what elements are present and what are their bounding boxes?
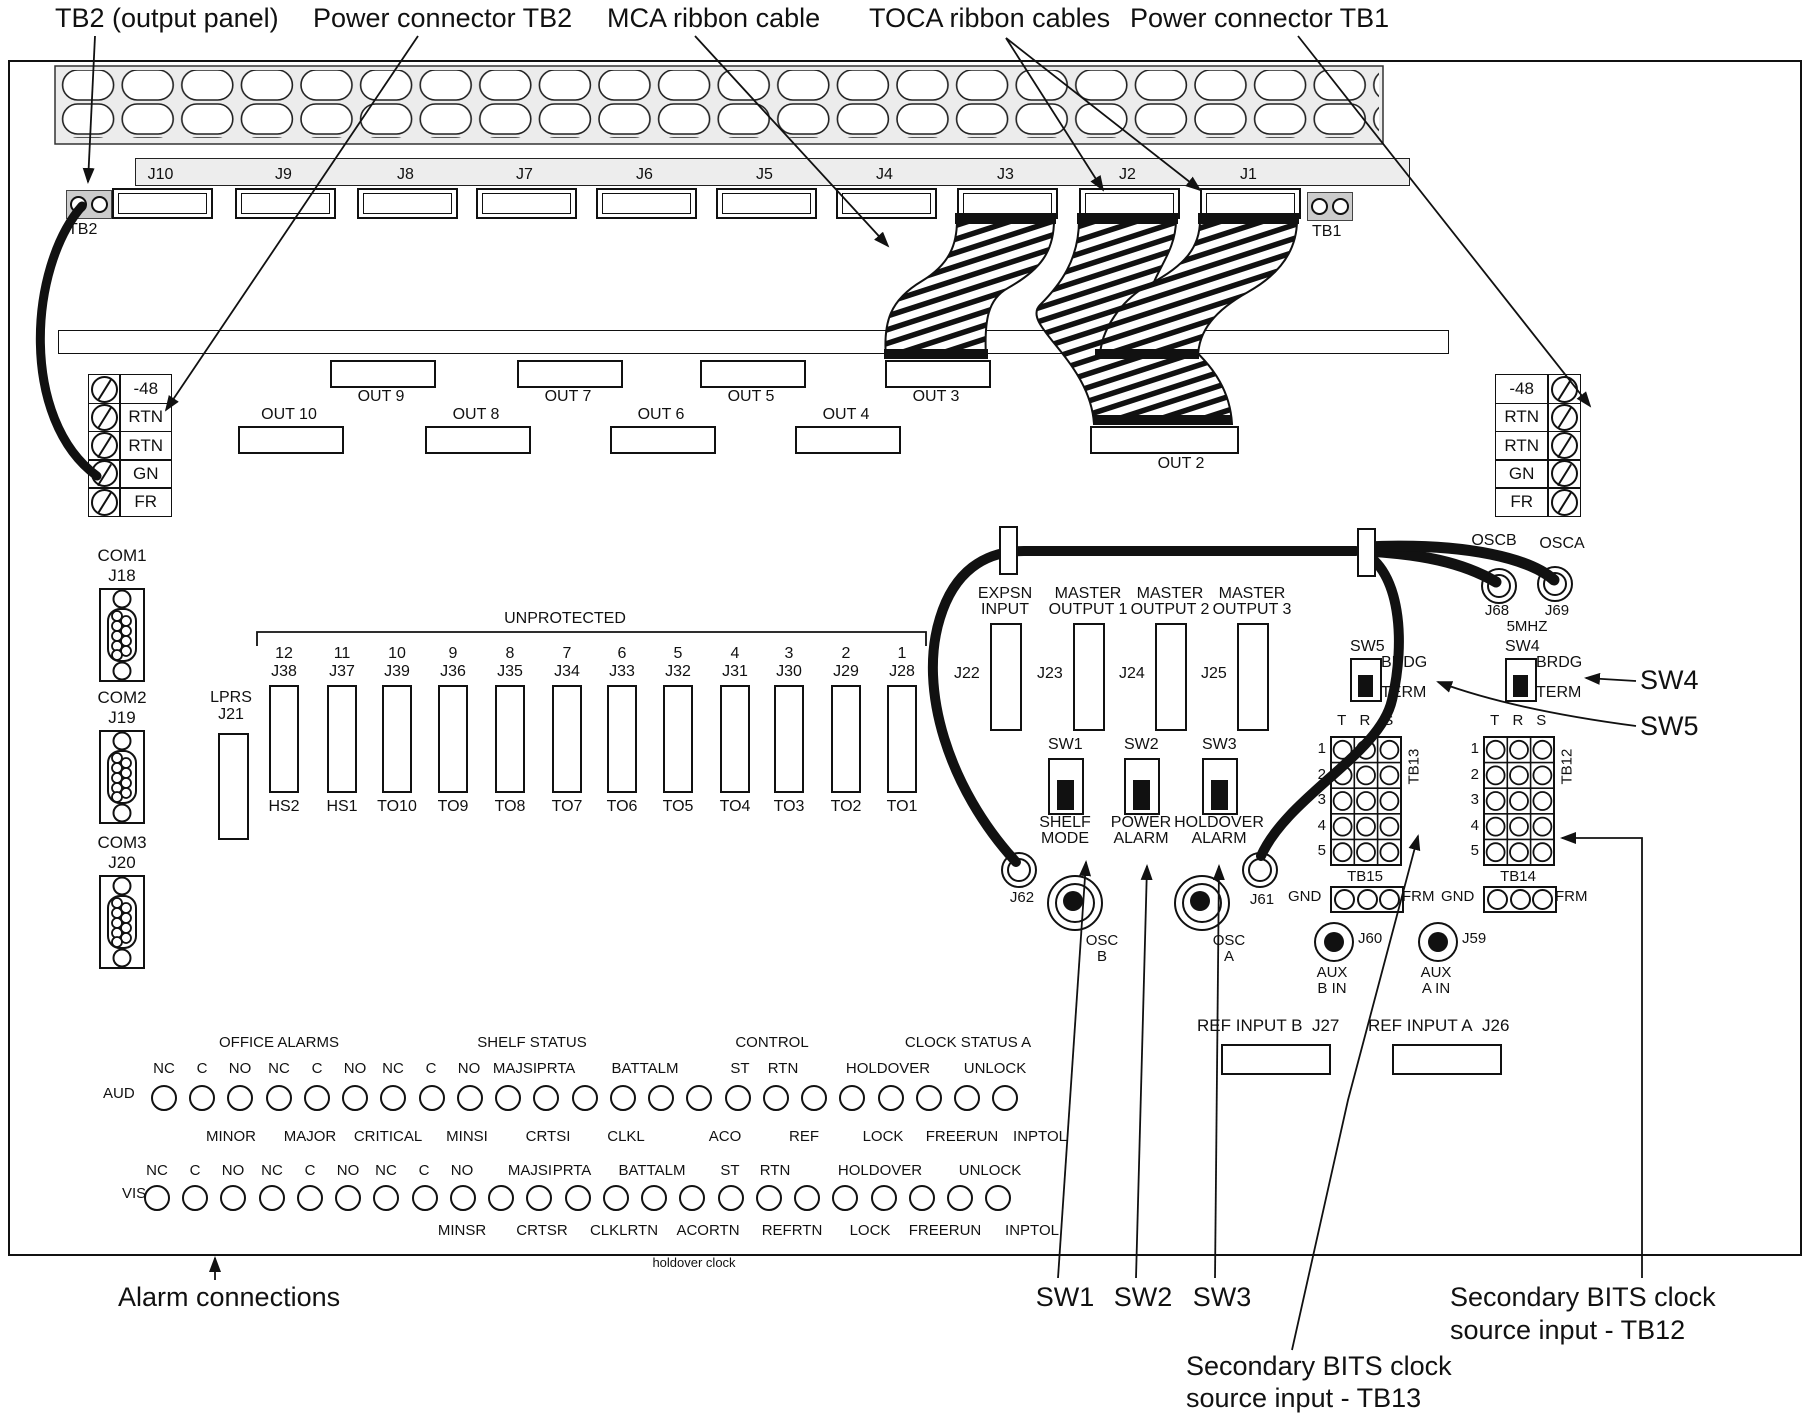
- pin-label: LOCK: [863, 1128, 904, 1145]
- tb13-row-numbers: 12345: [1314, 736, 1326, 864]
- screw-icon: [91, 489, 118, 516]
- tb15-label: TB15: [1330, 868, 1400, 885]
- pin-label: MINSR: [438, 1222, 486, 1239]
- pin-label: CLKLRTN: [590, 1222, 658, 1239]
- callout-secondary-tb13-line1: Secondary BITS clock: [1186, 1352, 1452, 1380]
- pin-label: CLKL: [607, 1128, 645, 1145]
- term-label: TERM: [1536, 684, 1581, 702]
- pin-label: NO: [344, 1060, 367, 1077]
- callout-sw1: SW1: [1036, 1283, 1095, 1311]
- pin-label: NC: [268, 1060, 290, 1077]
- slot-number: 7: [538, 645, 596, 663]
- terminal-label: RTN: [1495, 431, 1548, 461]
- slot-number: 1: [873, 645, 931, 663]
- pin-label: REFRTN: [762, 1222, 823, 1239]
- pin-label: C: [197, 1060, 208, 1077]
- aux-jack: J60: [1358, 930, 1382, 947]
- slot-number: 12: [255, 645, 313, 663]
- slot-number: 2: [817, 645, 875, 663]
- pin-circle: [457, 1085, 483, 1111]
- unprotected-slot: 10 J39 TO10: [368, 645, 426, 816]
- j61-label: J61: [1250, 892, 1274, 908]
- switch-body: [1350, 658, 1382, 702]
- pin-label: NO: [222, 1162, 245, 1179]
- slot-box: [382, 685, 412, 793]
- slot-box: [327, 685, 357, 793]
- unprotected-slot: 5 J32 TO5: [649, 645, 707, 816]
- pin-circle: [342, 1085, 368, 1111]
- slot-box: [552, 685, 582, 793]
- out-box: [425, 426, 531, 454]
- terminal-row: RTN: [88, 404, 172, 432]
- gnd-label: GND: [1441, 888, 1474, 905]
- master-port-box: [1237, 623, 1269, 731]
- pin-circle: [801, 1085, 827, 1111]
- pin-circle: [373, 1185, 399, 1211]
- pin-circle: [603, 1185, 629, 1211]
- terminal-label: FR: [119, 487, 172, 517]
- osc-a-line2: A: [1201, 948, 1257, 965]
- pin-circle: [151, 1085, 177, 1111]
- slot-box: [438, 685, 468, 793]
- slot-jack: J32: [649, 663, 707, 681]
- pin-label: PRTA: [553, 1162, 592, 1179]
- callout-sw5-label: SW5: [1640, 712, 1699, 740]
- terminal-label: GN: [1495, 459, 1548, 489]
- jack-label: J2: [1079, 166, 1176, 184]
- terminal-label: RTN: [1495, 403, 1548, 433]
- slot-number: 6: [593, 645, 651, 663]
- gnd-label: GND: [1288, 888, 1321, 905]
- screw-icon: [1551, 432, 1578, 459]
- ref-input-jack: J27: [1312, 1016, 1339, 1035]
- column-header: R: [1353, 712, 1376, 729]
- vis-row-label: VIS: [122, 1186, 146, 1202]
- out-label: OUT 10: [238, 406, 340, 424]
- ref-input: REF INPUT A J26: [1368, 1016, 1509, 1075]
- callout-secondary-tb13-line2: source input - TB13: [1186, 1384, 1421, 1412]
- pin-label: HOLDOVER: [838, 1162, 922, 1179]
- out2-label: OUT 2: [1158, 456, 1205, 473]
- screw-icon: [1551, 404, 1578, 431]
- row-number: 2: [1314, 762, 1326, 788]
- pin-circle: [220, 1185, 246, 1211]
- unprotected-slot: 1 J28 TO1: [873, 645, 931, 816]
- terminal-row: RTN: [1497, 432, 1581, 460]
- slot-number: 3: [760, 645, 818, 663]
- ref-input-box: [1221, 1044, 1331, 1075]
- screw-icon: [1551, 489, 1578, 516]
- slot-jack: J28: [873, 663, 931, 681]
- com-jack: J19: [96, 708, 148, 728]
- db9-connector-icon: [99, 588, 145, 682]
- tb12-pin-grid: [1483, 736, 1555, 866]
- pin-label: ST: [730, 1060, 749, 1077]
- jack-box: [716, 188, 817, 219]
- callout-sw2: SW2: [1114, 1283, 1173, 1311]
- tb1-terminal-hole: [1332, 198, 1349, 215]
- jack-box: [836, 188, 937, 219]
- pin-circle: [419, 1085, 445, 1111]
- pin-label: CRTSR: [516, 1222, 567, 1239]
- pin-circle: [610, 1085, 636, 1111]
- terminal-row: FR: [88, 489, 172, 517]
- screw-icon: [1551, 460, 1578, 487]
- pin-label: PRTA: [537, 1060, 576, 1077]
- unprotected-slot: 3 J30 TO3: [760, 645, 818, 816]
- pin-circle: [450, 1185, 476, 1211]
- slot-tag: TO7: [538, 798, 596, 816]
- alarm-section-header: OFFICE ALARMS: [219, 1034, 339, 1051]
- jack-box: [476, 188, 577, 219]
- pin-label: FREERUN: [926, 1128, 999, 1145]
- terminal-screw-cell: [88, 403, 121, 433]
- terminal-row: RTN: [1497, 404, 1581, 432]
- jack-box: [235, 188, 336, 219]
- terminal-screw-cell: [1548, 487, 1581, 517]
- aux-connector-icon: [1314, 922, 1354, 962]
- pin-circle: [878, 1085, 904, 1111]
- pin-circle: [572, 1085, 598, 1111]
- terminal-label: RTN: [119, 431, 172, 461]
- out-label: OUT 8: [425, 406, 527, 424]
- unprotected-slot: 2 J29 TO2: [817, 645, 875, 816]
- pin-circle: [380, 1085, 406, 1111]
- slot-number: 9: [424, 645, 482, 663]
- row-number: 4: [1467, 813, 1479, 839]
- slot-box: [269, 685, 299, 793]
- pin-label: C: [190, 1162, 201, 1179]
- slot-tag: TO8: [481, 798, 539, 816]
- jack-label: J6: [596, 166, 693, 184]
- tb12-row-numbers: 12345: [1467, 736, 1479, 864]
- callout-mca-ribbon-cable: MCA ribbon cable: [607, 4, 820, 32]
- pin-circle: [763, 1085, 789, 1111]
- ref-input: REF INPUT B J27: [1197, 1016, 1339, 1075]
- tb12-name: TB12: [1559, 745, 1576, 785]
- out-label: OUT 9: [330, 388, 432, 406]
- osc-b-line2: B: [1074, 948, 1130, 965]
- out-box: [330, 360, 436, 388]
- pin-label: NC: [146, 1162, 168, 1179]
- pin-label: NC: [382, 1060, 404, 1077]
- ref-input-jack: J26: [1482, 1016, 1509, 1035]
- pin-label: ACORTN: [676, 1222, 739, 1239]
- slot-tag: TO2: [817, 798, 875, 816]
- pin-circle: [335, 1185, 361, 1211]
- pin-circle: [182, 1185, 208, 1211]
- callout-secondary-tb12-line1: Secondary BITS clock: [1450, 1283, 1716, 1311]
- pin-label: INPTOL: [1005, 1222, 1059, 1239]
- pin-label: LOCK: [850, 1222, 891, 1239]
- pin-circle: [412, 1185, 438, 1211]
- switch-name: SW2: [1124, 736, 1158, 754]
- ref-input-label: REF INPUT A: [1368, 1016, 1473, 1035]
- pin-label: NO: [458, 1060, 481, 1077]
- terminal-screw-cell: [88, 459, 121, 489]
- com-name: COM1: [96, 546, 148, 566]
- screw-icon: [91, 376, 118, 403]
- terminal-label: RTN: [119, 403, 172, 433]
- out-box: [885, 360, 991, 388]
- tb2-power-connector: [66, 190, 112, 219]
- slot-box: [607, 685, 637, 793]
- unprotected-slot: 4 J31 TO4: [706, 645, 764, 816]
- pin-label: NC: [153, 1060, 175, 1077]
- pin-circle: [259, 1185, 285, 1211]
- pin-circle: [495, 1085, 521, 1111]
- pin-circle: [832, 1185, 858, 1211]
- unprotected-slot: 8 J35 TO8: [481, 645, 539, 816]
- pin-label: C: [419, 1162, 430, 1179]
- row-number: 1: [1314, 736, 1326, 762]
- row-number: 3: [1314, 787, 1326, 813]
- callout-power-connector-tb1: Power connector TB1: [1130, 4, 1389, 32]
- out-label: OUT 6: [610, 406, 712, 424]
- out2-box: [1090, 426, 1239, 454]
- callout-sw4-label: SW4: [1640, 666, 1699, 694]
- pin-label: BATTALM: [619, 1162, 686, 1179]
- term-label: TERM: [1381, 684, 1426, 702]
- tb13-column-headers: TRS: [1330, 712, 1400, 729]
- pin-label: MINOR: [206, 1128, 256, 1145]
- pin-circle: [144, 1185, 170, 1211]
- j68-label: J68: [1485, 603, 1509, 619]
- out-label: OUT 7: [517, 388, 619, 406]
- pin-circle: [526, 1185, 552, 1211]
- tb2-terminal-hole: [91, 196, 108, 213]
- power-terminal-block-left: -48 RTN RTN GN FR: [88, 376, 172, 517]
- terminal-screw-cell: [1548, 403, 1581, 433]
- slot-jack: J29: [817, 663, 875, 681]
- slot-jack: J38: [255, 663, 313, 681]
- pin-circle: [648, 1085, 674, 1111]
- oscb-label: OSCB: [1471, 533, 1516, 550]
- jack-label: J5: [716, 166, 813, 184]
- master-port-jack: J25: [1201, 665, 1227, 683]
- terminal-screw-cell: [88, 487, 121, 517]
- slot-number: 5: [649, 645, 707, 663]
- slot-number: 4: [706, 645, 764, 663]
- switch-name: SW5: [1350, 638, 1380, 656]
- slot-tag: TO10: [368, 798, 426, 816]
- jack-label: J10: [112, 166, 209, 184]
- db9-connector-icon: [99, 730, 145, 824]
- slot-jack: J36: [424, 663, 482, 681]
- ref-input-label: REF INPUT B: [1197, 1016, 1302, 1035]
- terminal-row: GN: [1497, 461, 1581, 489]
- callout-power-connector-tb2: Power connector TB2: [313, 4, 572, 32]
- master-port-line2: INPUT: [960, 601, 1050, 619]
- pin-circle: [679, 1185, 705, 1211]
- unprotected-slot: 6 J33 TO6: [593, 645, 651, 816]
- master-port-box: [1155, 623, 1187, 731]
- pin-label: MAJSI: [508, 1162, 552, 1179]
- terminal-label: -48: [1495, 374, 1548, 404]
- aud-row-label: AUD: [103, 1086, 135, 1102]
- pin-label: NC: [261, 1162, 283, 1179]
- unprotected-title: UNPROTECTED: [504, 611, 626, 628]
- pin-label: UNLOCK: [959, 1162, 1022, 1179]
- pin-circle: [565, 1185, 591, 1211]
- holdover-clock-note: holdover clock: [652, 1256, 735, 1270]
- pin-circle: [909, 1185, 935, 1211]
- jack-box: [112, 188, 213, 219]
- unprotected-slot: 12 J38 HS2: [255, 645, 313, 816]
- pin-circle: [916, 1085, 942, 1111]
- master-port-jack: J22: [954, 665, 980, 683]
- screw-icon: [1551, 376, 1578, 403]
- pin-circle: [947, 1185, 973, 1211]
- terminal-row: FR: [1497, 489, 1581, 517]
- switch-name: SW3: [1202, 736, 1236, 754]
- sw5-big: SW5: [1640, 711, 1699, 741]
- power-terminal-block-right: -48 RTN RTN GN FR: [1497, 376, 1581, 517]
- 5mhz-label: 5MHZ: [1507, 619, 1548, 635]
- pin-label: C: [426, 1060, 437, 1077]
- pin-circle: [756, 1185, 782, 1211]
- pin-label: HOLDOVER: [846, 1060, 930, 1077]
- slot-box: [774, 685, 804, 793]
- switch-body: [1048, 758, 1084, 815]
- tb1-terminal-hole: [1311, 198, 1328, 215]
- column-header: T: [1483, 712, 1506, 729]
- com-jack: J18: [96, 566, 148, 586]
- sw4-big: SW4: [1640, 665, 1699, 695]
- callout-sw3: SW3: [1193, 1283, 1252, 1311]
- pin-label: C: [305, 1162, 316, 1179]
- db9-connector-icon: [99, 875, 145, 969]
- j62-label: J62: [1010, 890, 1034, 906]
- osca-label: OSCA: [1539, 536, 1584, 553]
- pin-circle: [266, 1085, 292, 1111]
- master-port-box: [990, 623, 1022, 731]
- pin-circle: [954, 1085, 980, 1111]
- pin-circle: [839, 1085, 865, 1111]
- ref-input-box: [1392, 1044, 1502, 1075]
- alarm-section-header: CONTROL: [735, 1034, 808, 1051]
- frm-label: FRM: [1402, 888, 1435, 905]
- brdg-label: BRDG: [1536, 654, 1582, 672]
- slot-tag: TO5: [649, 798, 707, 816]
- pin-label: NO: [229, 1060, 252, 1077]
- terminal-screw-cell: [1548, 374, 1581, 404]
- aux-connector-icon: [1418, 922, 1458, 962]
- pin-circle: [686, 1085, 712, 1111]
- aux-jack: J59: [1462, 930, 1486, 947]
- master-port-jack: J24: [1119, 665, 1145, 683]
- slot-number: 8: [481, 645, 539, 663]
- pin-label: MINSI: [446, 1128, 488, 1145]
- slot-box: [831, 685, 861, 793]
- master-port-line2: OUTPUT 3: [1207, 601, 1297, 619]
- com-port: COM2 J19: [96, 688, 148, 824]
- pin-label: MAJSI: [493, 1060, 537, 1077]
- pin-label: CRTSI: [526, 1128, 571, 1145]
- slot-jack: J33: [593, 663, 651, 681]
- column-header: S: [1377, 712, 1400, 729]
- pin-circle: [533, 1085, 559, 1111]
- tb14-gnd-strip: [1483, 886, 1557, 913]
- switch-name: SW1: [1048, 736, 1082, 754]
- jack-label: J1: [1200, 166, 1297, 184]
- tb2-label: TB2: [68, 222, 97, 239]
- slot-jack: J30: [760, 663, 818, 681]
- column-header: S: [1530, 712, 1553, 729]
- master-port-jack: J23: [1037, 665, 1063, 683]
- pin-label: MAJOR: [284, 1128, 337, 1145]
- slot-tag: HS2: [255, 798, 313, 816]
- terminal-row: -48: [1497, 376, 1581, 404]
- slot-jack: J31: [706, 663, 764, 681]
- master-port-box: [1073, 623, 1105, 731]
- callout-tb2-output-panel: TB2 (output panel): [55, 4, 279, 32]
- jack-label: J7: [476, 166, 573, 184]
- pin-circle: [297, 1185, 323, 1211]
- jack-label: J8: [357, 166, 454, 184]
- slot-tag: TO4: [706, 798, 764, 816]
- tb13-name: TB13: [1406, 745, 1423, 785]
- com-port: COM3 J20: [96, 833, 148, 969]
- out-label: OUT 5: [700, 388, 802, 406]
- slot-tag: HS1: [313, 798, 371, 816]
- osc-a-line1: OSC: [1201, 932, 1257, 949]
- osc-b-line1: OSC: [1074, 932, 1130, 949]
- pin-circle: [641, 1185, 667, 1211]
- terminal-screw-cell: [88, 431, 121, 461]
- jack-label: J4: [836, 166, 933, 184]
- out-box: [610, 426, 716, 454]
- slot-jack: J35: [481, 663, 539, 681]
- com-name: COM2: [96, 688, 148, 708]
- tb1-label: TB1: [1312, 224, 1341, 241]
- lprs-jack: J21: [218, 707, 244, 724]
- tb12-column-headers: TRS: [1483, 712, 1553, 729]
- pin-circle: [227, 1085, 253, 1111]
- out-box: [517, 360, 623, 388]
- pin-label: UNLOCK: [964, 1060, 1027, 1077]
- pin-circle: [189, 1085, 215, 1111]
- terminal-label: GN: [119, 459, 172, 489]
- column-header: T: [1330, 712, 1353, 729]
- jack-label: J3: [957, 166, 1054, 184]
- jack-box: [957, 188, 1058, 219]
- pin-label: RTN: [768, 1060, 799, 1077]
- terminal-screw-cell: [1548, 459, 1581, 489]
- pin-circle: [488, 1185, 514, 1211]
- slot-tag: TO1: [873, 798, 931, 816]
- terminal-label: FR: [1495, 487, 1548, 517]
- out-box: [795, 426, 901, 454]
- jack-box: [1079, 188, 1180, 219]
- slot-tag: TO9: [424, 798, 482, 816]
- slot-jack: J39: [368, 663, 426, 681]
- pin-label: INPTOL: [1013, 1128, 1067, 1145]
- callout-secondary-tb12-line2: source input - TB12: [1450, 1316, 1685, 1344]
- slot-box: [663, 685, 693, 793]
- slot-box: [887, 685, 917, 793]
- terminal-screw-cell: [88, 374, 121, 404]
- com-port: COM1 J18: [96, 546, 148, 682]
- unprotected-slot: 7 J34 TO7: [538, 645, 596, 816]
- slot-tag: TO3: [760, 798, 818, 816]
- aux-line1: AUX: [1416, 964, 1456, 981]
- pin-circle: [725, 1085, 751, 1111]
- screw-icon: [91, 432, 118, 459]
- row-number: 5: [1314, 838, 1326, 864]
- switch-body: [1202, 758, 1238, 815]
- out-label: OUT 3: [885, 388, 987, 406]
